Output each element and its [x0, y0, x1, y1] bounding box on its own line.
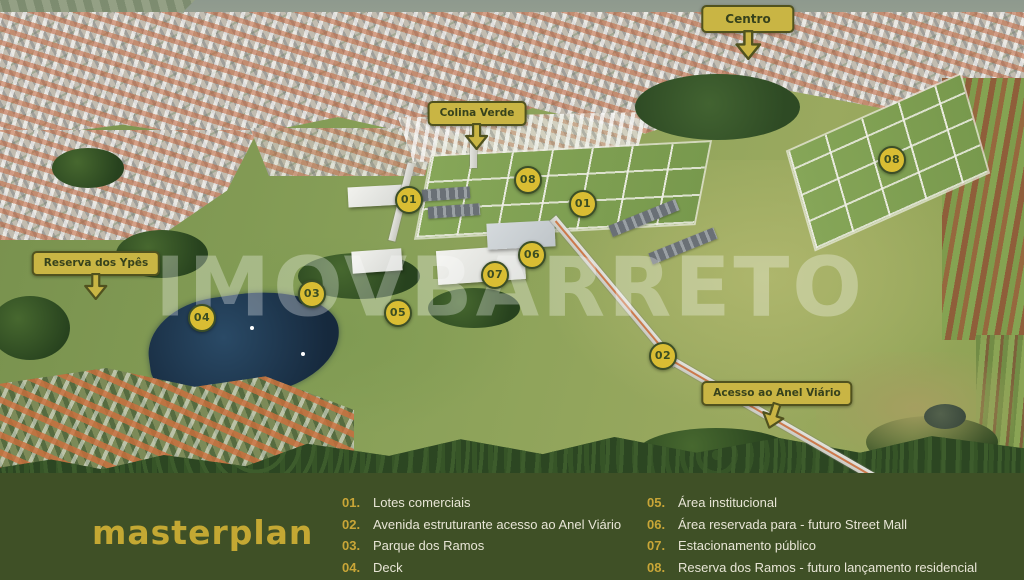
legend-item-05: 05. Área institucional: [647, 492, 977, 514]
legend-number: 07.: [647, 538, 671, 553]
masterplan-aerial-photo: [0, 0, 1024, 473]
map-marker-05: 05: [384, 299, 412, 327]
legend-text: Avenida estruturante acesso ao Anel Viár…: [373, 517, 621, 532]
callout-centro: Centro: [701, 5, 794, 33]
legend-text: Deck: [373, 560, 403, 575]
callout-acesso-anel-viario: Acesso ao Anel Viário: [701, 381, 852, 406]
map-marker-08-a: 08: [514, 166, 542, 194]
callout-reserva-dos-ypes-label: Reserva dos Ypês: [44, 257, 148, 269]
legend-item-08: 08. Reserva dos Ramos - futuro lançament…: [647, 557, 977, 579]
down-arrow-icon: [734, 30, 762, 60]
legend-text: Lotes comerciais: [373, 495, 471, 510]
legend-item-03: 03. Parque dos Ramos: [342, 535, 621, 557]
legend-item-01: 01. Lotes comerciais: [342, 492, 621, 514]
legend-footer: masterplan 01. Lotes comerciais 02. Aven…: [0, 473, 1024, 580]
city-area-left: [0, 130, 258, 240]
legend-number: 02.: [342, 517, 366, 532]
legend-text: Área institucional: [678, 495, 777, 510]
map-marker-06: 06: [518, 241, 546, 269]
callout-colina-verde: Colina Verde: [428, 101, 527, 126]
boat-dot: [301, 352, 305, 356]
legend-text: Estacionamento público: [678, 538, 816, 553]
map-marker-02: 02: [649, 342, 677, 370]
map-marker-01-a: 01: [395, 186, 423, 214]
wooded-hill: [635, 74, 800, 140]
legend-column-left: 01. Lotes comerciais 02. Avenida estrutu…: [342, 492, 621, 578]
masterplan-page: IMOVBARRETO 01 01 08 08 06 07 03 05 04 0…: [0, 0, 1024, 580]
watermark-text: IMOVBARRETO: [155, 241, 865, 336]
legend-number: 06.: [647, 517, 671, 532]
legend-number: 08.: [647, 560, 671, 575]
map-marker-04: 04: [188, 304, 216, 332]
map-marker-07: 07: [481, 261, 509, 289]
tree-cluster: [0, 296, 70, 360]
map-marker-08-b: 08: [878, 146, 906, 174]
callout-acesso-anel-viario-label: Acesso ao Anel Viário: [713, 387, 840, 399]
legend-column-right: 05. Área institucional 06. Área reservad…: [647, 492, 977, 578]
legend-item-02: 02. Avenida estruturante acesso ao Anel …: [342, 514, 621, 536]
legend-number: 03.: [342, 538, 366, 553]
callout-colina-verde-label: Colina Verde: [440, 107, 515, 119]
callout-reserva-dos-ypes: Reserva dos Ypês: [32, 251, 160, 276]
legend-number: 04.: [342, 560, 366, 575]
legend-text: Reserva dos Ramos - futuro lançamento re…: [678, 560, 977, 575]
map-marker-01-b: 01: [569, 190, 597, 218]
legend-text: Área reservada para - futuro Street Mall: [678, 517, 907, 532]
down-arrow-icon: [84, 273, 108, 300]
tree-cluster: [52, 148, 124, 188]
legend-number: 05.: [647, 495, 671, 510]
map-marker-03: 03: [298, 280, 326, 308]
legend-item-07: 07. Estacionamento público: [647, 535, 977, 557]
legend-number: 01.: [342, 495, 366, 510]
down-arrow-icon: [465, 123, 489, 150]
legend-text: Parque dos Ramos: [373, 538, 484, 553]
callout-centro-label: Centro: [725, 12, 770, 26]
masterplan-logo: masterplan: [92, 513, 313, 552]
legend-item-06: 06. Área reservada para - futuro Street …: [647, 514, 977, 536]
small-pond: [924, 404, 966, 429]
legend-item-04: 04. Deck: [342, 557, 621, 579]
